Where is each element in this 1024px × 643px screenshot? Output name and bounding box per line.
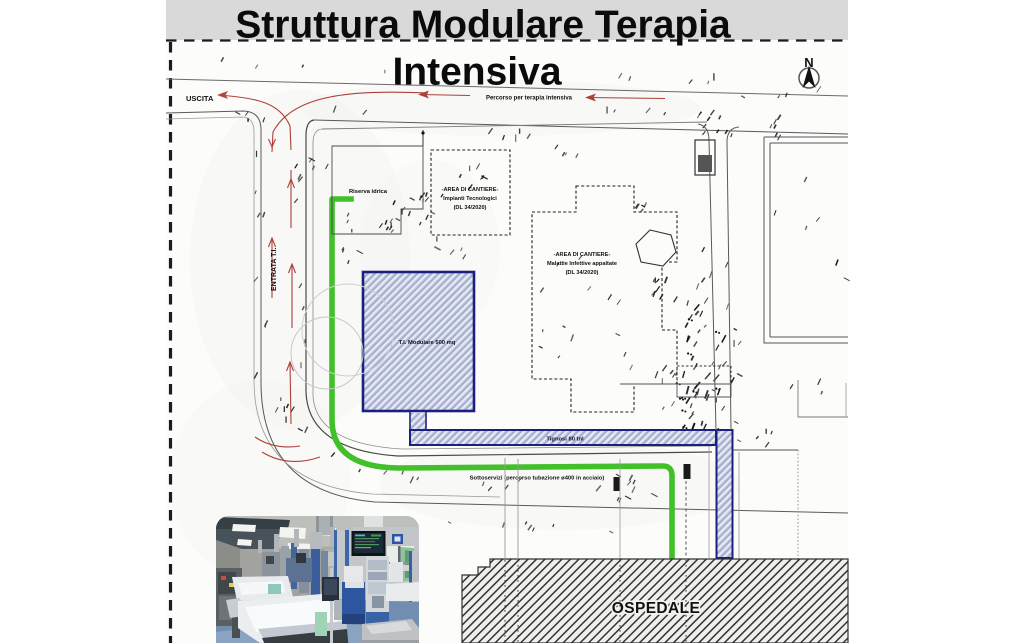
svg-text:Tignosi 80 tnl: Tignosi 80 tnl <box>546 437 584 443</box>
svg-text:Impianti Tecnologici: Impianti Tecnologici <box>443 196 497 202</box>
svg-text:ENTRATA T.I.: ENTRATA T.I. <box>271 248 278 291</box>
svg-text:-AREA DI CANTIERE-: -AREA DI CANTIERE- <box>554 252 611 258</box>
svg-text:Struttura Modulare Terapia: Struttura Modulare Terapia <box>235 4 731 47</box>
svg-text:(DL 34/2020): (DL 34/2020) <box>454 205 487 211</box>
svg-text:OSPEDALE: OSPEDALE <box>612 600 700 617</box>
svg-text:Percorso per terapia intensiva: Percorso per terapia intensiva <box>486 96 573 102</box>
svg-text:Riserva idrica: Riserva idrica <box>349 189 388 195</box>
svg-text:Malattie Infettive appaltate: Malattie Infettive appaltate <box>547 261 617 267</box>
svg-text:USCITA: USCITA <box>186 94 214 103</box>
svg-text:Sottoservizi (percorso tubazio: Sottoservizi (percorso tubazione ø400 in… <box>470 476 605 482</box>
svg-text:-AREA DI CANTIERE-: -AREA DI CANTIERE- <box>442 187 499 193</box>
svg-text:Intensiva: Intensiva <box>392 51 561 94</box>
svg-text:T.I. Modulare 500 mq: T.I. Modulare 500 mq <box>399 340 456 346</box>
svg-text:(DL 34/2020): (DL 34/2020) <box>566 270 599 276</box>
